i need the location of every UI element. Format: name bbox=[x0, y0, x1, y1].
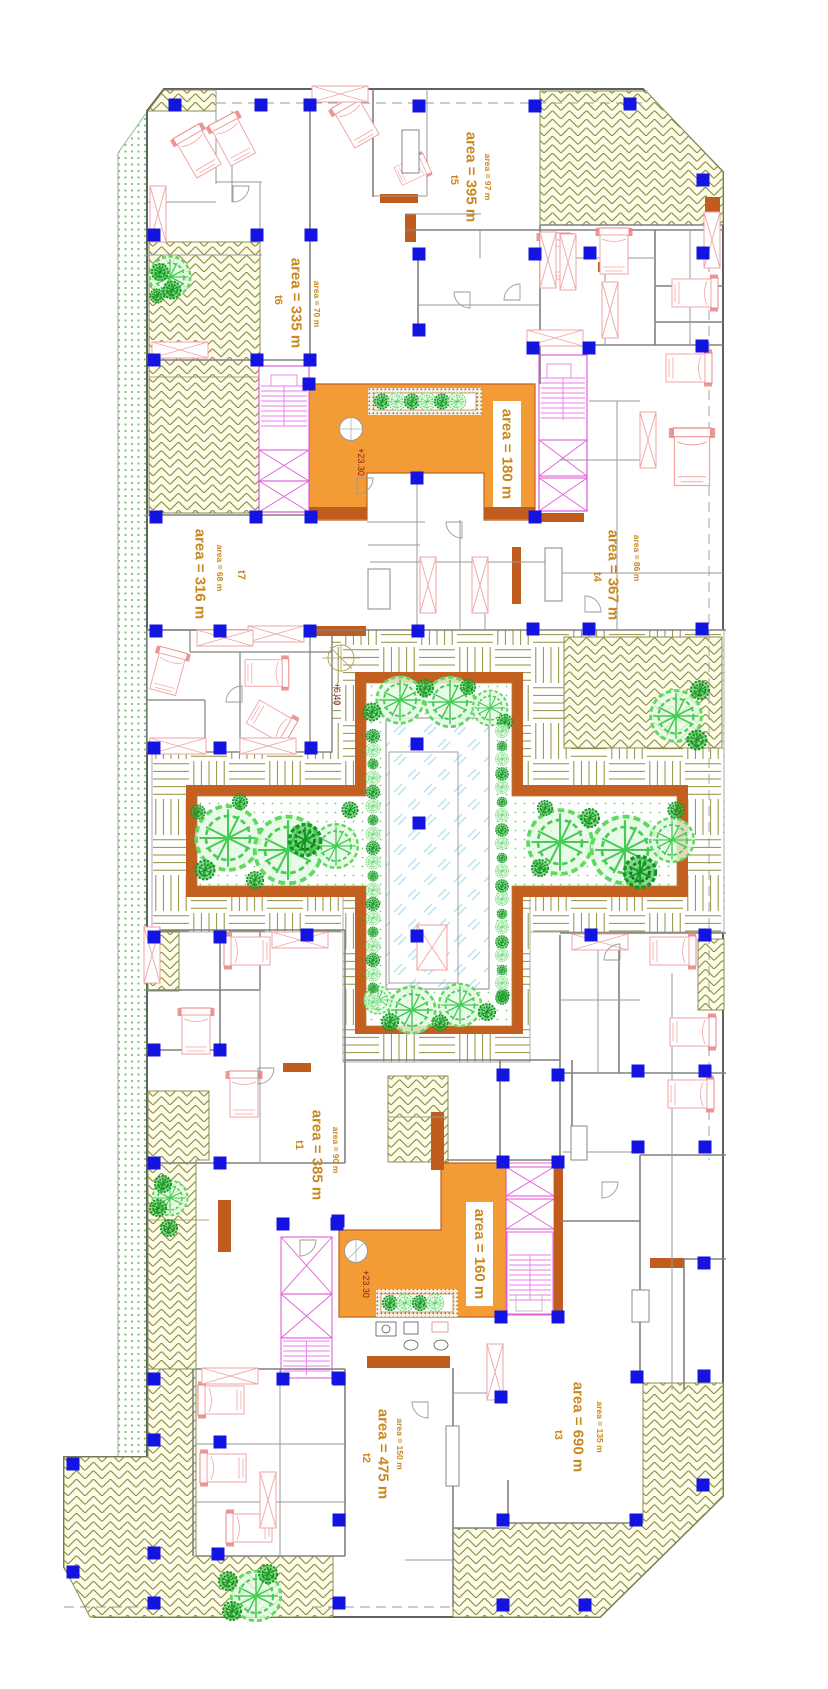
svg-text:area = 180 m: area = 180 m bbox=[499, 409, 516, 500]
svg-text:area = 690 m: area = 690 m bbox=[570, 1382, 587, 1473]
svg-text:area = 68 m: area = 68 m bbox=[215, 545, 225, 592]
svg-text:t6: t6 bbox=[272, 295, 284, 305]
svg-text:area = 335 m: area = 335 m bbox=[288, 258, 305, 349]
svg-text:area = 316 m: area = 316 m bbox=[192, 529, 209, 620]
svg-text:area = 135 m: area = 135 m bbox=[595, 1401, 605, 1453]
svg-text:t7: t7 bbox=[235, 570, 247, 580]
svg-text:area = 90 m: area = 90 m bbox=[331, 1127, 341, 1174]
svg-text:+6.40: +6.40 bbox=[332, 683, 342, 706]
svg-text:+23.30: +23.30 bbox=[356, 448, 366, 476]
svg-text:area = 160 m: area = 160 m bbox=[471, 1209, 488, 1300]
svg-text:t2: t2 bbox=[360, 1453, 372, 1463]
svg-text:+23.30: +23.30 bbox=[361, 1270, 371, 1298]
svg-text:area = 70 m: area = 70 m bbox=[312, 281, 322, 328]
svg-text:area = 86 m: area = 86 m bbox=[632, 535, 642, 582]
svg-text:area = 475 m: area = 475 m bbox=[375, 1409, 392, 1500]
svg-text:area = 385 m: area = 385 m bbox=[309, 1110, 326, 1201]
svg-text:t5: t5 bbox=[448, 175, 460, 185]
svg-text:area = 97 m: area = 97 m bbox=[483, 154, 493, 201]
svg-text:t3: t3 bbox=[552, 1430, 564, 1440]
svg-text:area = 367 m: area = 367 m bbox=[605, 530, 622, 621]
svg-text:t4: t4 bbox=[591, 572, 603, 583]
svg-text:area = 150 m: area = 150 m bbox=[395, 1418, 405, 1470]
svg-text:area = 395 m: area = 395 m bbox=[463, 132, 480, 223]
svg-text:t1: t1 bbox=[293, 1140, 305, 1150]
